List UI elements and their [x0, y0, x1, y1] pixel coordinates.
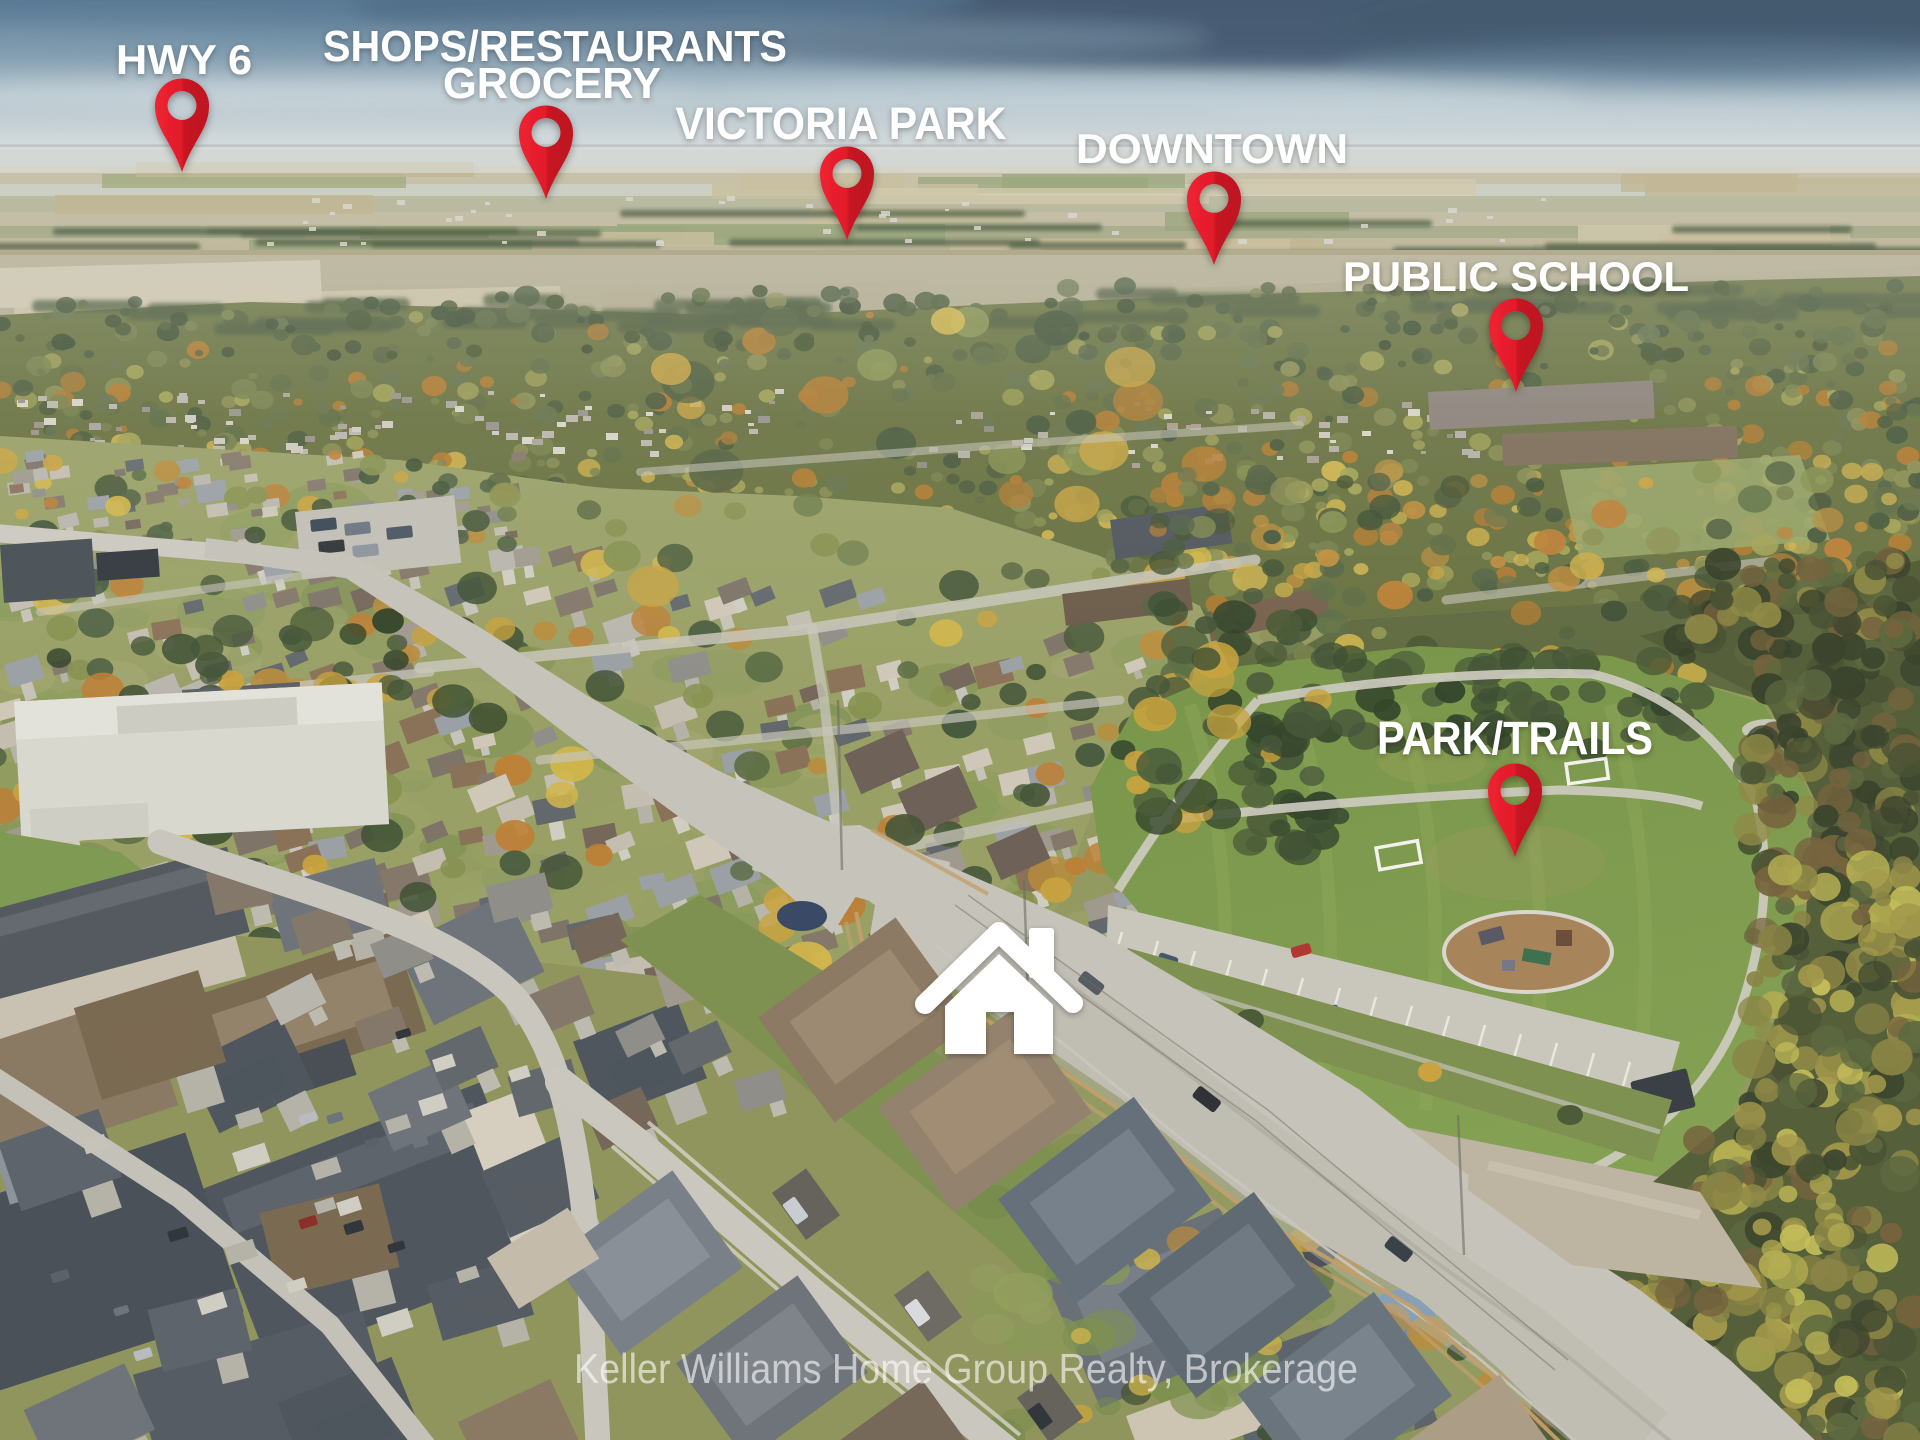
- svg-text:DOWNTOWN: DOWNTOWN: [1076, 125, 1348, 172]
- svg-text:PUBLIC SCHOOL: PUBLIC SCHOOL: [1343, 253, 1689, 300]
- svg-text:VICTORIA PARK: VICTORIA PARK: [676, 98, 1007, 149]
- svg-text:PARK/TRAILS: PARK/TRAILS: [1377, 712, 1653, 764]
- svg-text:HWY 6: HWY 6: [116, 36, 252, 83]
- svg-text:GROCERY: GROCERY: [443, 59, 661, 108]
- svg-text:Keller Williams Home Group Rea: Keller Williams Home Group Realty, Broke…: [574, 1345, 1358, 1392]
